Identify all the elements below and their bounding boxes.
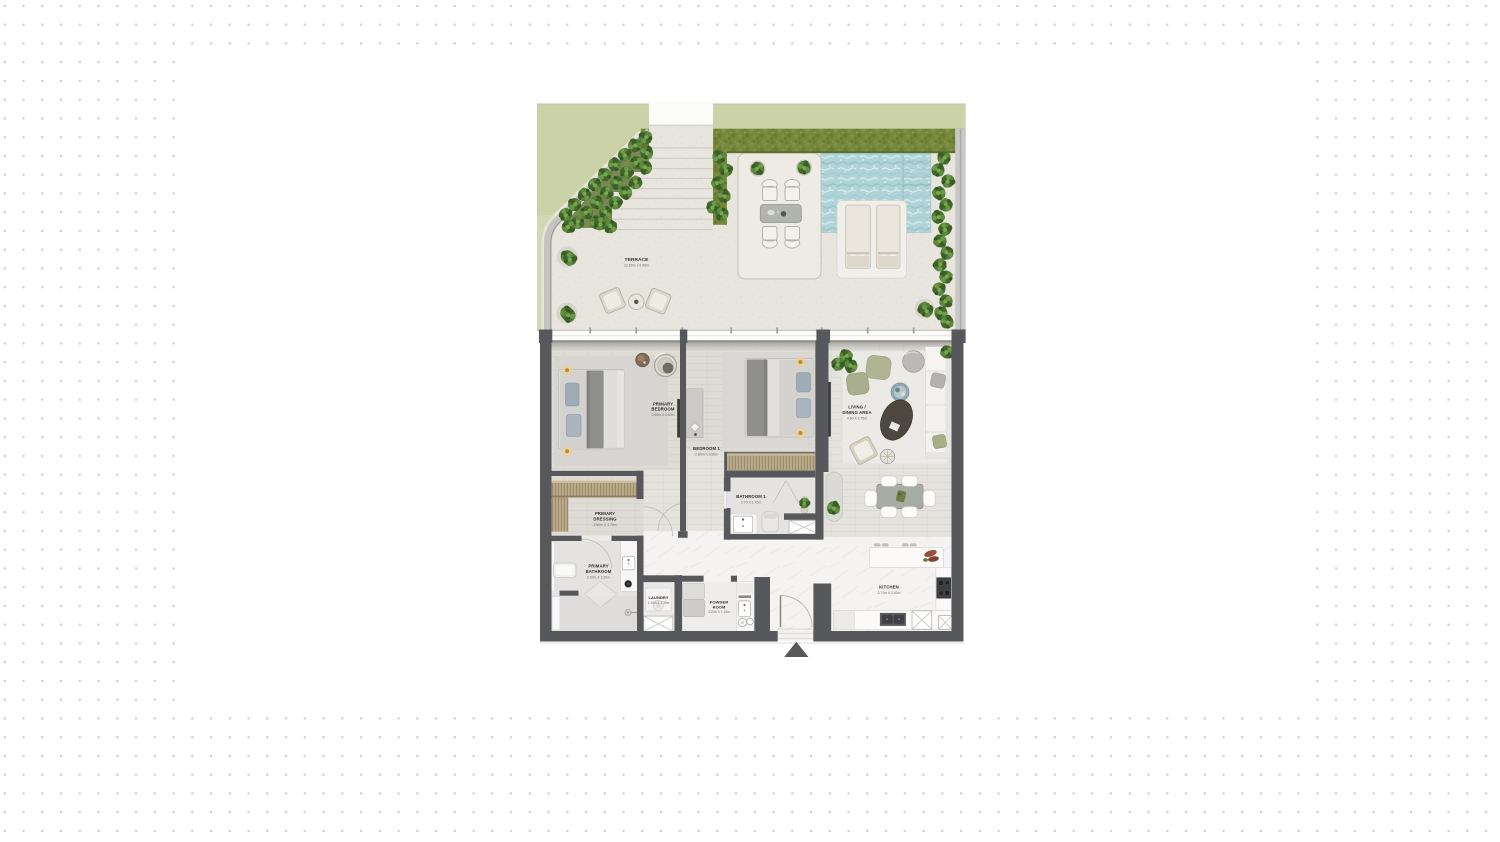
svg-text:DRESSING: DRESSING — [593, 516, 617, 521]
svg-text:2.70 X 1.70m: 2.70 X 1.70m — [741, 500, 761, 504]
svg-text:BATHROOM: BATHROOM — [586, 569, 612, 574]
svg-text:3.70m X 2.50m: 3.70m X 2.50m — [878, 591, 901, 595]
svg-text:BEDROOM 1: BEDROOM 1 — [693, 446, 720, 451]
svg-text:DINING AREA: DINING AREA — [842, 410, 871, 415]
svg-text:LIVING /: LIVING / — [848, 405, 866, 410]
svg-text:PRIMARY: PRIMARY — [653, 401, 673, 406]
svg-text:KITCHEN: KITCHEN — [879, 585, 899, 590]
svg-text:4.80 X 4.75m: 4.80 X 4.75m — [847, 416, 867, 420]
svg-text:BEDROOM: BEDROOM — [651, 407, 674, 412]
svg-text:ROOM: ROOM — [713, 604, 726, 609]
svg-text:BATHROOM 1: BATHROOM 1 — [736, 494, 766, 499]
svg-text:PRIMARY: PRIMARY — [588, 564, 608, 569]
svg-text:PRIMARY: PRIMARY — [595, 511, 615, 516]
svg-text:TERRACE: TERRACE — [625, 257, 650, 263]
svg-text:2.80m X 3.90m: 2.80m X 3.90m — [695, 453, 718, 457]
svg-text:12.60m x 9.50m: 12.60m x 9.50m — [624, 264, 649, 268]
svg-text:LAUNDRY: LAUNDRY — [648, 595, 668, 600]
svg-text:2.60m X 4.60m: 2.60m X 4.60m — [652, 413, 675, 417]
svg-text:1.10m X 2.30m: 1.10m X 2.30m — [648, 601, 670, 605]
svg-text:2.50m X 2.20m: 2.50m X 2.20m — [587, 575, 610, 579]
svg-text:2.20m X 1.15m: 2.20m X 1.15m — [708, 610, 730, 614]
svg-text:2.60m X 1.70m: 2.60m X 1.70m — [594, 523, 617, 527]
